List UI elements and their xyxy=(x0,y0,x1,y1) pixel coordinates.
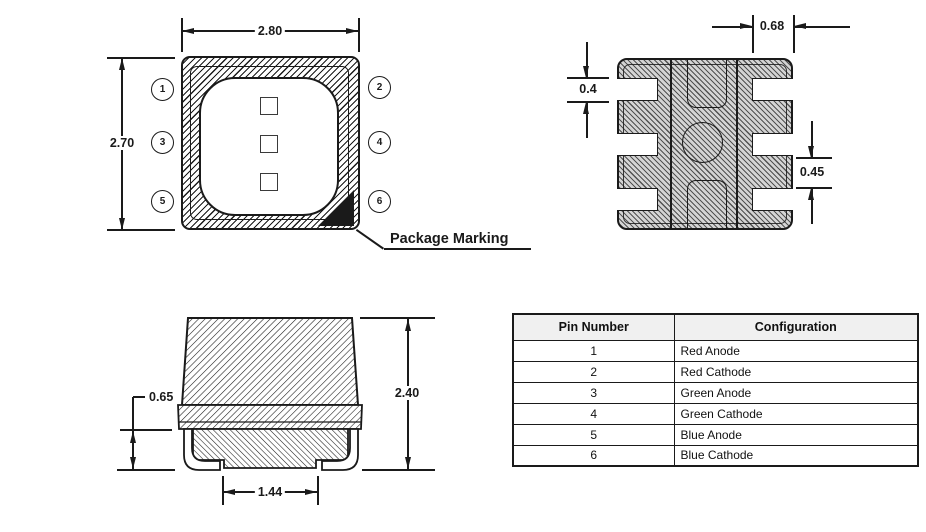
dim-label: 2.40 xyxy=(392,386,422,400)
dim-label: 0.65 xyxy=(146,390,176,404)
extension-line xyxy=(117,469,175,471)
configuration-cell: Green Cathode xyxy=(674,403,918,424)
pin-number-cell: 6 xyxy=(513,445,674,466)
pin-config-table: Pin Number Configuration 1Red Anode2Red … xyxy=(512,313,919,467)
bracket-line xyxy=(133,396,145,398)
extension-line xyxy=(107,229,175,231)
extension-line xyxy=(362,469,435,471)
solder-pad-2 xyxy=(752,78,793,101)
column-divider-left xyxy=(670,59,672,229)
extension-line xyxy=(358,18,360,52)
pin-number-cell: 3 xyxy=(513,382,674,403)
pin-bubble-3: 3 xyxy=(151,131,174,154)
pin-number-cell: 4 xyxy=(513,403,674,424)
arrowhead-up xyxy=(119,58,125,70)
pin-table-row: 1Red Anode xyxy=(513,340,918,361)
configuration-cell: Red Cathode xyxy=(674,361,918,382)
solder-pad-6 xyxy=(752,188,793,211)
dim-label: 1.44 xyxy=(255,485,285,499)
pin-table-row: 2Red Cathode xyxy=(513,361,918,382)
package-marking-label: Package Marking xyxy=(390,231,508,247)
extension-line xyxy=(752,15,754,53)
arrowhead-up xyxy=(405,319,411,331)
dim-label: 2.80 xyxy=(255,24,285,38)
bracket-drop xyxy=(132,397,134,430)
pin-number-header: Pin Number xyxy=(513,314,674,340)
dim-label: 0.4 xyxy=(576,82,599,96)
column-divider-right xyxy=(736,59,738,229)
extension-line xyxy=(360,317,435,319)
pin-table-row: 5Blue Anode xyxy=(513,424,918,445)
extension-line xyxy=(317,476,319,505)
extension-line xyxy=(107,57,175,59)
arrowhead-up xyxy=(808,188,814,200)
arrowhead-right xyxy=(740,23,752,29)
arrowhead-down xyxy=(808,146,814,158)
extension-line xyxy=(796,187,832,189)
pin-number-cell: 5 xyxy=(513,424,674,445)
configuration-cell: Blue Cathode xyxy=(674,445,918,466)
extension-line xyxy=(793,15,795,53)
led-package-drawing: 135246 2.80 2.70 Package Marking xyxy=(0,0,926,532)
led-chip-1 xyxy=(260,97,278,115)
pin-table-body: 1Red Anode2Red Cathode3Green Anode4Green… xyxy=(513,340,918,466)
arrowhead-left xyxy=(182,28,194,34)
pin-table-header-row: Pin Number Configuration xyxy=(513,314,918,340)
extension-line xyxy=(181,18,183,52)
configuration-cell: Green Anode xyxy=(674,382,918,403)
arrowhead-down xyxy=(119,218,125,230)
dim-label: 0.45 xyxy=(797,165,827,179)
dim-label: 0.68 xyxy=(757,19,787,33)
solder-pad-1 xyxy=(617,78,658,101)
top-notch xyxy=(687,59,727,108)
arrowhead-left xyxy=(223,489,235,495)
solder-pad-3 xyxy=(617,133,658,156)
pin-bubble-6: 6 xyxy=(368,190,391,213)
pin-bubble-5: 5 xyxy=(151,190,174,213)
pin-number-cell: 2 xyxy=(513,361,674,382)
arrowhead-up xyxy=(130,431,136,443)
leader-line-diagonal xyxy=(356,229,384,249)
pin-table-row: 3Green Anode xyxy=(513,382,918,403)
dim-label: 2.70 xyxy=(107,136,137,150)
arrowhead-right xyxy=(346,28,358,34)
configuration-cell: Red Anode xyxy=(674,340,918,361)
extension-line xyxy=(120,429,172,431)
extension-line xyxy=(796,157,832,159)
arrowhead-down xyxy=(405,457,411,469)
arrowhead-down xyxy=(583,66,589,78)
solder-pad-4 xyxy=(752,133,793,156)
arrowhead-right xyxy=(305,489,317,495)
pin-bubble-1: 1 xyxy=(151,78,174,101)
pin-bubble-2: 2 xyxy=(368,76,391,99)
led-chip-2 xyxy=(260,135,278,153)
bottom-notch xyxy=(687,180,727,229)
arrowhead-up xyxy=(583,102,589,114)
arrowhead-down xyxy=(130,457,136,469)
pin-table-row: 6Blue Cathode xyxy=(513,445,918,466)
led-chip-3 xyxy=(260,173,278,191)
side-body-trapezoid xyxy=(182,318,358,405)
arrowhead-left xyxy=(794,23,806,29)
configuration-header: Configuration xyxy=(674,314,918,340)
solder-pad-5 xyxy=(617,188,658,211)
pin-bubble-4: 4 xyxy=(368,131,391,154)
side-view-drawing xyxy=(100,300,480,515)
pin-number-cell: 1 xyxy=(513,340,674,361)
configuration-cell: Blue Anode xyxy=(674,424,918,445)
pin-table-row: 4Green Cathode xyxy=(513,403,918,424)
leader-line-horizontal xyxy=(384,248,531,250)
center-thermal-circle xyxy=(682,122,723,163)
side-flange xyxy=(178,405,362,429)
